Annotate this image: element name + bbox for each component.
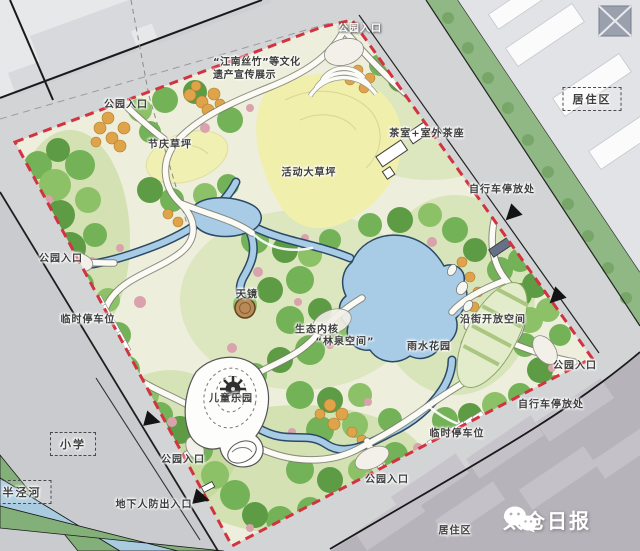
label-street-open-space: 沿街开放空间 [460, 311, 526, 326]
heritage-line2: 遗产宣传展示 [213, 70, 276, 81]
building-footprint-x [599, 6, 631, 36]
label-bike-parking-bottom: 自行车停放处 [518, 396, 584, 411]
sky-mirror-pool [235, 298, 255, 318]
label-bike-parking-top: 自行车停放处 [469, 181, 535, 196]
label-sky-mirror: 天镜 [236, 286, 258, 301]
heritage-line1: “江南丝竹”等文化 [213, 57, 301, 68]
wechat-icon [503, 505, 537, 533]
label-temp-parking-bottom: 临时停车位 [430, 425, 485, 440]
park-plan-map: 公园入口 “江南丝竹”等文化 遗产宣传展示 公园入口 节庆草坪 活动大草坪 茶室… [0, 0, 640, 551]
label-river: 半泾河 [0, 480, 52, 504]
label-park-entrance-top: 公园入口 [338, 20, 382, 35]
plan-drawing [0, 0, 640, 551]
label-heritage-display: “江南丝竹”等文化 遗产宣传展示 [213, 56, 325, 82]
label-park-entrance-bottomright: 公园入口 [365, 471, 409, 486]
label-rain-garden: 雨水花园 [407, 338, 451, 353]
label-park-entrance-left: 公园入口 [39, 250, 83, 265]
label-festival-lawn: 节庆草坪 [148, 136, 192, 151]
label-civil-defense-exit: 地下人防出入口 [116, 496, 193, 511]
label-temp-parking-left: 临时停车位 [61, 311, 116, 326]
label-park-entrance-bottomleft: 公园入口 [161, 451, 205, 466]
label-forest-spring: “林泉空间” [315, 333, 374, 348]
label-activity-lawn: 活动大草坪 [282, 164, 337, 179]
label-residential-top: 居住区 [563, 87, 622, 111]
label-park-entrance-topleft: 公园入口 [104, 96, 148, 111]
label-park-entrance-right: 公园入口 [553, 357, 597, 372]
label-tea-house: 茶室+室外茶座 [389, 125, 464, 140]
label-residential-bottom: 居住区 [439, 522, 472, 537]
label-children-park: 儿童乐园 [209, 390, 253, 405]
label-school: 小学 [50, 432, 96, 456]
watermark: 太仓日报 [503, 505, 591, 534]
